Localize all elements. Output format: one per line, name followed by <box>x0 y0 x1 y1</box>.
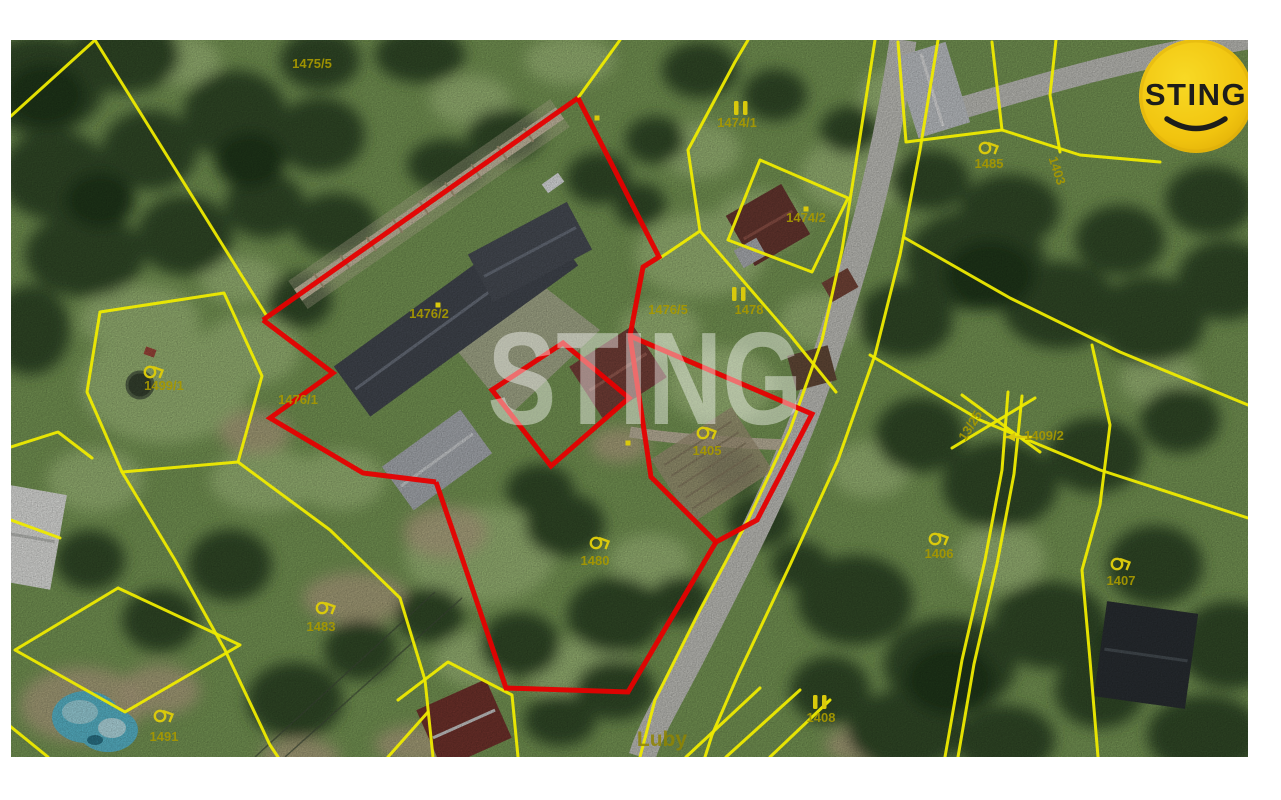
parcel-label: 1483 <box>307 619 336 634</box>
aerial-photo: 1475/51474/11474/21476/21476/514781476/1… <box>0 17 1281 775</box>
watermark: STING <box>488 305 803 452</box>
aerial-map: 1475/51474/11474/21476/21476/514781476/1… <box>0 0 1281 800</box>
parcel-label: 1474/2 <box>786 210 826 225</box>
place-label: Luby <box>637 728 687 751</box>
parcel-label: 1406 <box>925 546 954 561</box>
parcel-label: 1491 <box>150 729 179 744</box>
parcel-dot-marker <box>595 116 600 121</box>
parcel-label: 1409/2 <box>1024 428 1064 443</box>
parcel-label: 1408 <box>807 710 836 725</box>
parcel-label: 1407 <box>1107 573 1136 588</box>
parcel-label: 1485 <box>975 156 1004 171</box>
sting-logo: STING <box>1139 39 1253 153</box>
parcel-label: 1475/5 <box>292 56 332 71</box>
parcel-label: 1476/1 <box>278 392 318 407</box>
parcel-label: 1476/2 <box>409 306 449 321</box>
parcel-label: 1499/1 <box>144 378 184 393</box>
parcel-label: 1474/1 <box>717 115 757 130</box>
parcel-label: 1480 <box>581 553 610 568</box>
sting-logo-text: STING <box>1145 77 1247 112</box>
real-estate-map-screenshot: 1475/51474/11474/21476/21476/514781476/1… <box>0 0 1281 800</box>
